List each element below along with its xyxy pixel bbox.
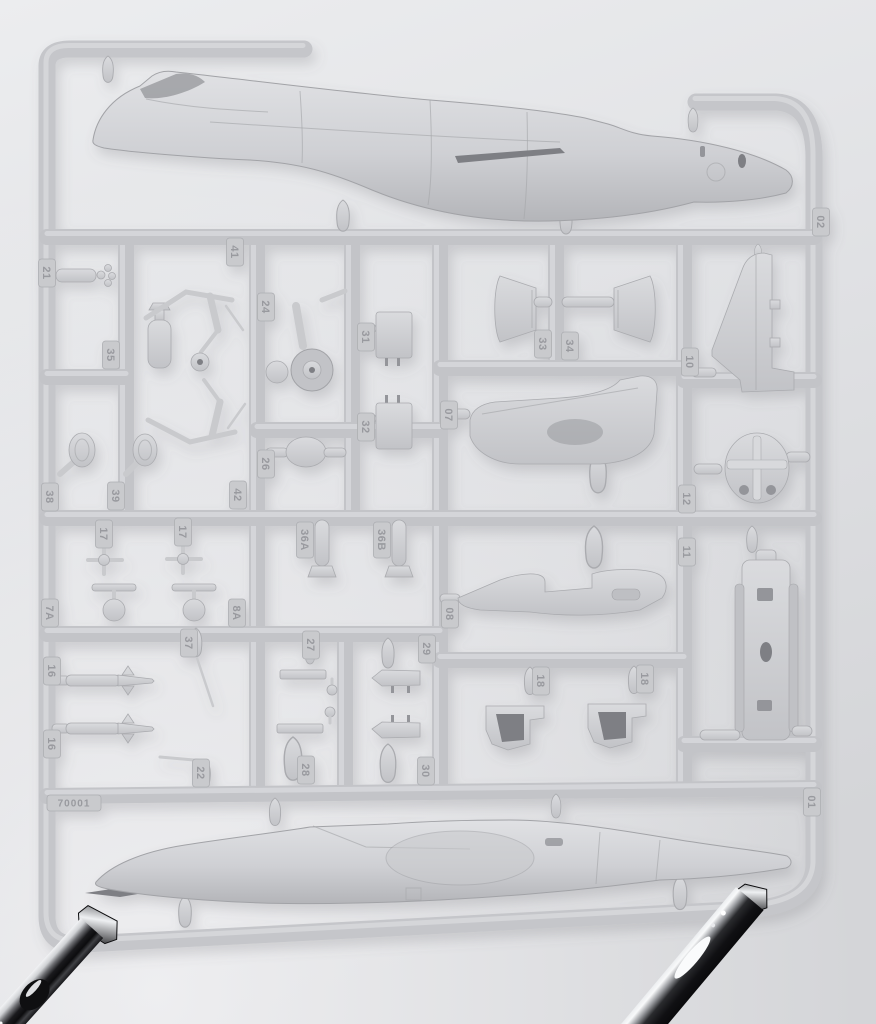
gear-wheel-hub xyxy=(191,353,209,371)
tag-27: 27 xyxy=(303,631,320,659)
svg-text:18: 18 xyxy=(534,674,546,687)
svg-text:30: 30 xyxy=(419,764,431,777)
svg-text:7A: 7A xyxy=(43,605,55,620)
tag-11: 11 xyxy=(679,538,696,566)
svg-text:33: 33 xyxy=(536,337,548,350)
svg-text:16: 16 xyxy=(45,737,57,750)
svg-text:08: 08 xyxy=(443,607,455,620)
tag-33: 33 xyxy=(535,330,552,358)
gate-stub xyxy=(673,876,687,910)
svg-text:12: 12 xyxy=(680,492,692,505)
tag-38: 38 xyxy=(42,483,59,511)
svg-text:17: 17 xyxy=(97,527,109,540)
tag-41: 41 xyxy=(227,238,244,266)
tag-08: 08 xyxy=(442,600,459,628)
gate-stub xyxy=(380,744,396,782)
tag-28: 28 xyxy=(298,756,315,784)
svg-text:70001: 70001 xyxy=(58,799,91,810)
tag-29: 29 xyxy=(419,635,436,663)
tag-18b: 18 xyxy=(637,665,654,693)
svg-text:41: 41 xyxy=(228,245,240,258)
svg-text:10: 10 xyxy=(683,355,695,368)
gate-stub xyxy=(179,896,192,927)
tag-24: 24 xyxy=(258,293,275,321)
svg-text:35: 35 xyxy=(104,348,116,361)
tag-37: 37 xyxy=(181,629,198,657)
gate-stub xyxy=(551,794,561,818)
tag-kit-number-70001: 70001 xyxy=(47,795,101,811)
tag-26: 26 xyxy=(258,450,275,478)
tag-39: 39 xyxy=(108,482,125,510)
tag-17b: 17 xyxy=(175,518,192,546)
tag-30: 30 xyxy=(418,757,435,785)
svg-text:39: 39 xyxy=(109,489,121,502)
svg-text:32: 32 xyxy=(359,420,371,433)
tag-16a: 16 xyxy=(44,657,61,685)
svg-text:16: 16 xyxy=(45,664,57,677)
gate-stub xyxy=(688,108,698,132)
svg-text:02: 02 xyxy=(814,215,826,228)
svg-text:26: 26 xyxy=(259,457,271,470)
tag-31: 31 xyxy=(358,323,375,351)
svg-text:22: 22 xyxy=(194,766,206,779)
gate-stub xyxy=(337,200,350,231)
svg-text:29: 29 xyxy=(420,642,432,655)
tag-10: 10 xyxy=(682,348,699,376)
gate-stub xyxy=(747,526,758,552)
svg-text:21: 21 xyxy=(40,266,52,279)
svg-text:42: 42 xyxy=(231,488,243,501)
gate-stub xyxy=(382,638,394,668)
tag-7a: 7A xyxy=(42,599,59,627)
tag-07: 07 xyxy=(441,401,458,429)
tag-36b: 36B xyxy=(374,522,391,558)
svg-text:17: 17 xyxy=(176,525,188,538)
tag-21: 21 xyxy=(39,259,56,287)
tag-32: 32 xyxy=(358,413,375,441)
tag-17a: 17 xyxy=(96,520,113,548)
svg-text:36A: 36A xyxy=(298,529,310,551)
nose-slot xyxy=(700,146,705,157)
svg-text:27: 27 xyxy=(304,638,316,651)
svg-text:07: 07 xyxy=(442,408,454,421)
svg-text:18: 18 xyxy=(638,672,650,685)
gate-stub xyxy=(269,798,280,826)
tag-35: 35 xyxy=(103,341,120,369)
tag-8a: 8A xyxy=(229,599,246,627)
svg-text:34: 34 xyxy=(563,339,575,353)
tag-18a: 18 xyxy=(533,667,550,695)
svg-text:36B: 36B xyxy=(375,529,387,551)
svg-text:38: 38 xyxy=(43,490,55,503)
svg-text:37: 37 xyxy=(182,636,194,649)
tag-42: 42 xyxy=(230,481,247,509)
svg-text:24: 24 xyxy=(259,300,271,314)
photo-of-model-kit-sprue: 21 35 38 39 41 42 24 26 31 32 07 33 34 1… xyxy=(0,0,876,1024)
tag-01: 01 xyxy=(804,788,821,816)
tag-02: 02 xyxy=(813,208,830,236)
scoop-detail xyxy=(545,838,563,846)
gate-stub xyxy=(103,56,114,82)
tag-36a: 36A xyxy=(297,522,314,558)
nose-hole xyxy=(738,154,746,168)
gate-stub xyxy=(586,526,603,568)
tag-16b: 16 xyxy=(44,730,61,758)
tag-22: 22 xyxy=(193,759,210,787)
svg-text:31: 31 xyxy=(359,330,371,343)
sprue-photo-svg: 21 35 38 39 41 42 24 26 31 32 07 33 34 1… xyxy=(0,0,876,1024)
tag-12: 12 xyxy=(679,485,696,513)
svg-text:8A: 8A xyxy=(230,605,242,620)
wing-root-fairing xyxy=(386,831,534,885)
svg-text:01: 01 xyxy=(805,795,817,808)
svg-text:28: 28 xyxy=(299,763,311,776)
svg-text:11: 11 xyxy=(680,546,692,559)
tag-34: 34 xyxy=(562,332,579,360)
